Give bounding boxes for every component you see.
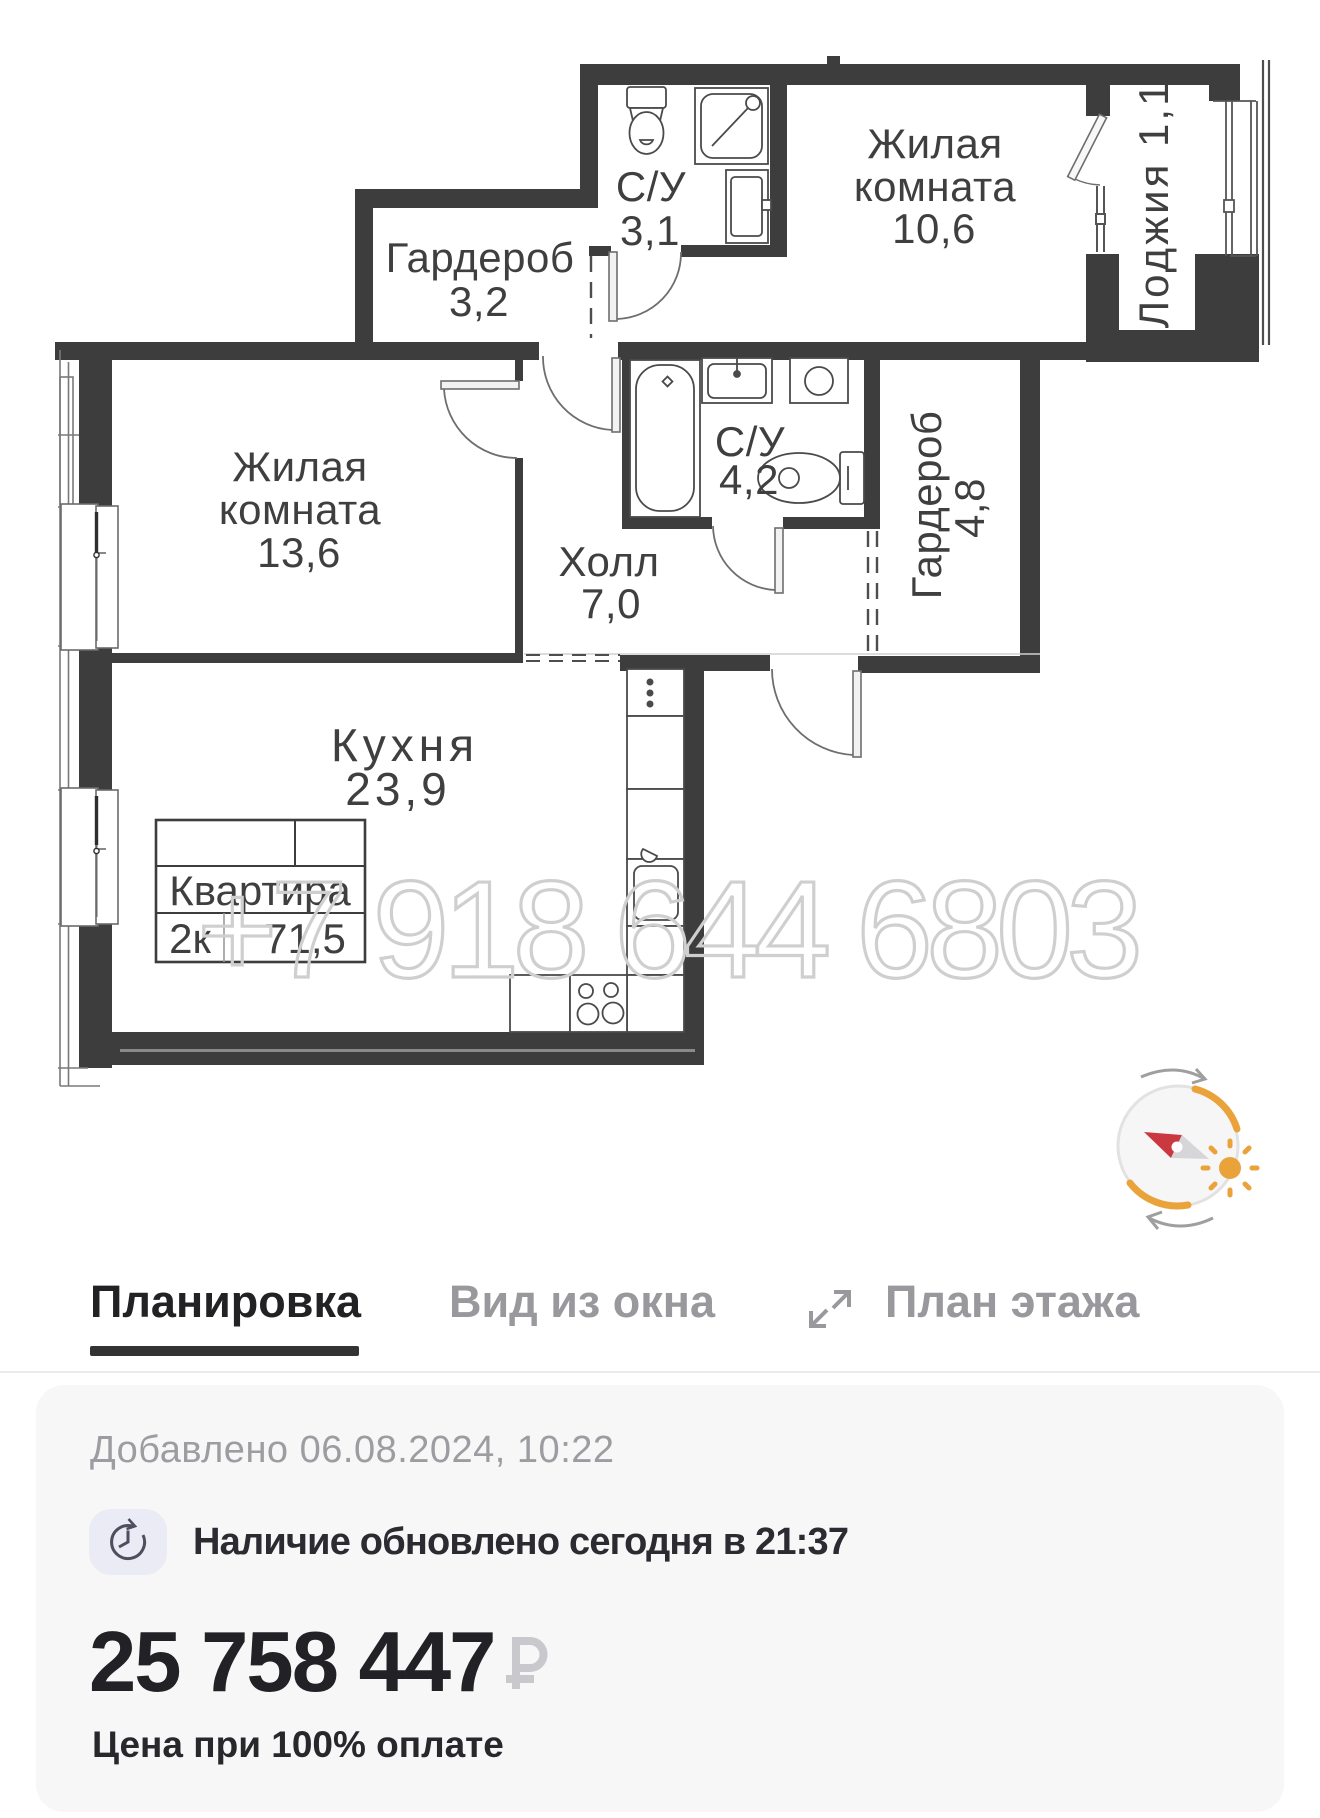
svg-text:+7 918 644 6803: +7 918 644 6803: [197, 853, 1147, 1007]
svg-text:Лоджия 1,1: Лоджия 1,1: [1130, 80, 1177, 329]
svg-text:Холл: Холл: [559, 538, 660, 585]
svg-text:Гардероб: Гардероб: [386, 234, 575, 281]
svg-text:3,1: 3,1: [620, 207, 680, 254]
svg-text:комната: комната: [854, 163, 1016, 210]
svg-text:Жилая: Жилая: [867, 120, 1002, 167]
svg-text:23,9: 23,9: [345, 763, 451, 815]
svg-text:13,6: 13,6: [257, 529, 341, 576]
svg-text:7,0: 7,0: [581, 580, 641, 627]
svg-text:3,2: 3,2: [449, 278, 509, 325]
svg-text:4,2: 4,2: [719, 456, 779, 503]
svg-text:Жилая: Жилая: [232, 443, 367, 490]
svg-text:4,8: 4,8: [946, 478, 993, 538]
svg-text:10,6: 10,6: [892, 205, 976, 252]
svg-text:С/У: С/У: [616, 163, 686, 210]
svg-text:комната: комната: [219, 486, 381, 533]
svg-text:Гардероб: Гардероб: [903, 411, 950, 600]
